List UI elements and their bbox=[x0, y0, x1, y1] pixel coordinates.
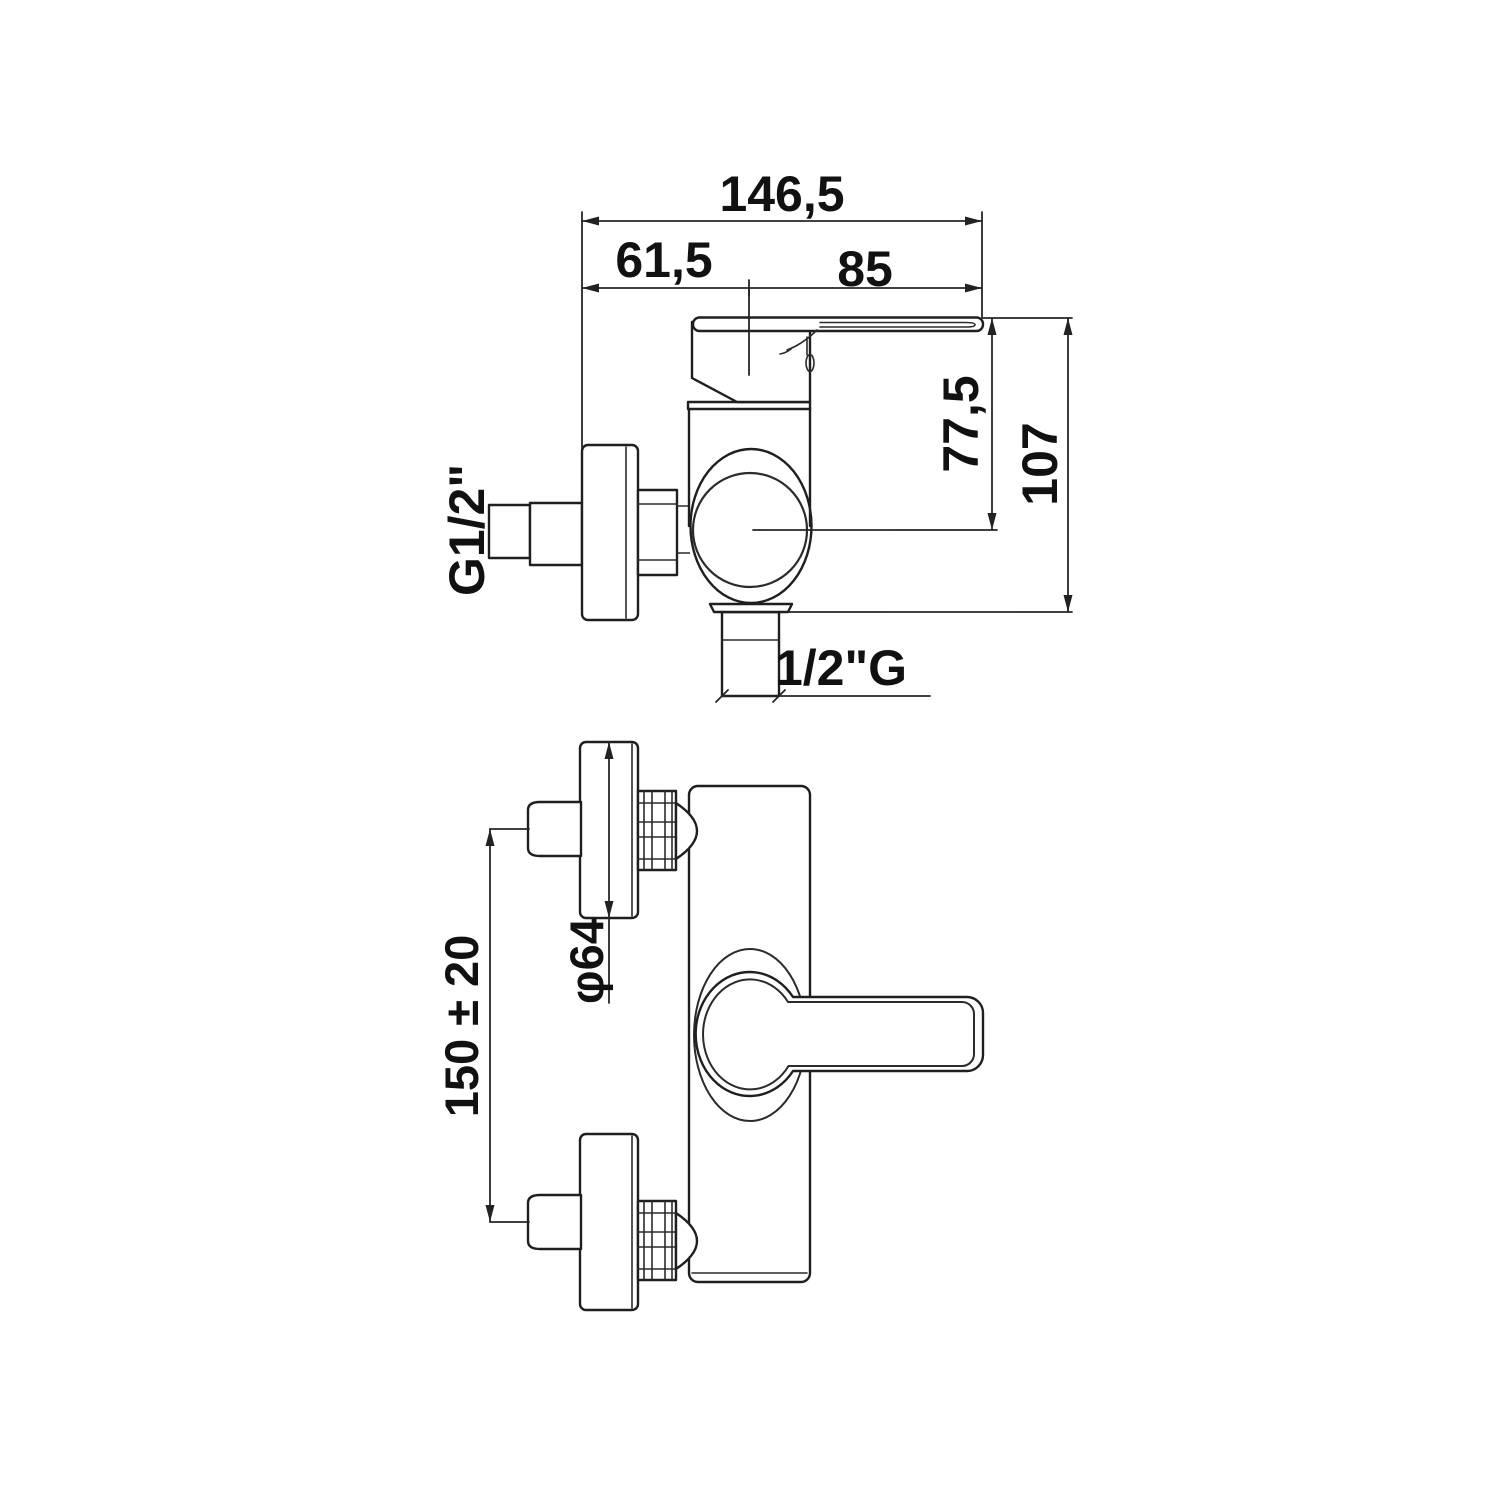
wall-flange-bottom-front bbox=[580, 1134, 638, 1310]
faucet-front-view bbox=[528, 742, 983, 1310]
dim-label-flange-diameter: φ64 bbox=[560, 918, 613, 1004]
dim-label-overall-height: 107 bbox=[1012, 422, 1068, 505]
dim-label-overall-width: 146,5 bbox=[719, 166, 844, 222]
outlet-collar bbox=[710, 604, 792, 612]
dimension-overall-height: 107 bbox=[1012, 318, 1073, 612]
shower-mixer-technical-drawing: 146,5 61,5 85 77,5 107 bbox=[0, 0, 1500, 1500]
inlet-nipple-top-front bbox=[528, 802, 581, 856]
hex-nut-side bbox=[638, 490, 691, 575]
technical-drawing-page: 146,5 61,5 85 77,5 107 bbox=[0, 0, 1500, 1500]
dimension-connection-spacing: 150 ± 20 bbox=[435, 829, 529, 1222]
dimension-center-height: 77,5 bbox=[933, 318, 997, 530]
dim-label-outlet-thread: 1/2"G bbox=[775, 640, 907, 696]
dim-label-inlet-thread: G1/2" bbox=[439, 464, 495, 596]
faucet-side-view bbox=[489, 318, 983, 697]
inlet-nipple-side bbox=[489, 503, 582, 565]
dim-label-handle-section: 85 bbox=[837, 241, 893, 297]
inlet-nipple-bottom-front bbox=[528, 1195, 581, 1249]
wall-flange-side bbox=[582, 445, 638, 620]
valve-body-side bbox=[689, 404, 812, 603]
handle-front bbox=[696, 972, 983, 1096]
dim-label-left-section: 61,5 bbox=[615, 232, 712, 288]
dim-label-connection-spacing: 150 ± 20 bbox=[435, 935, 488, 1118]
dimension-overall-width: 146,5 bbox=[582, 166, 982, 226]
cartridge-cap bbox=[692, 322, 810, 402]
dim-label-center-height: 77,5 bbox=[933, 375, 989, 472]
